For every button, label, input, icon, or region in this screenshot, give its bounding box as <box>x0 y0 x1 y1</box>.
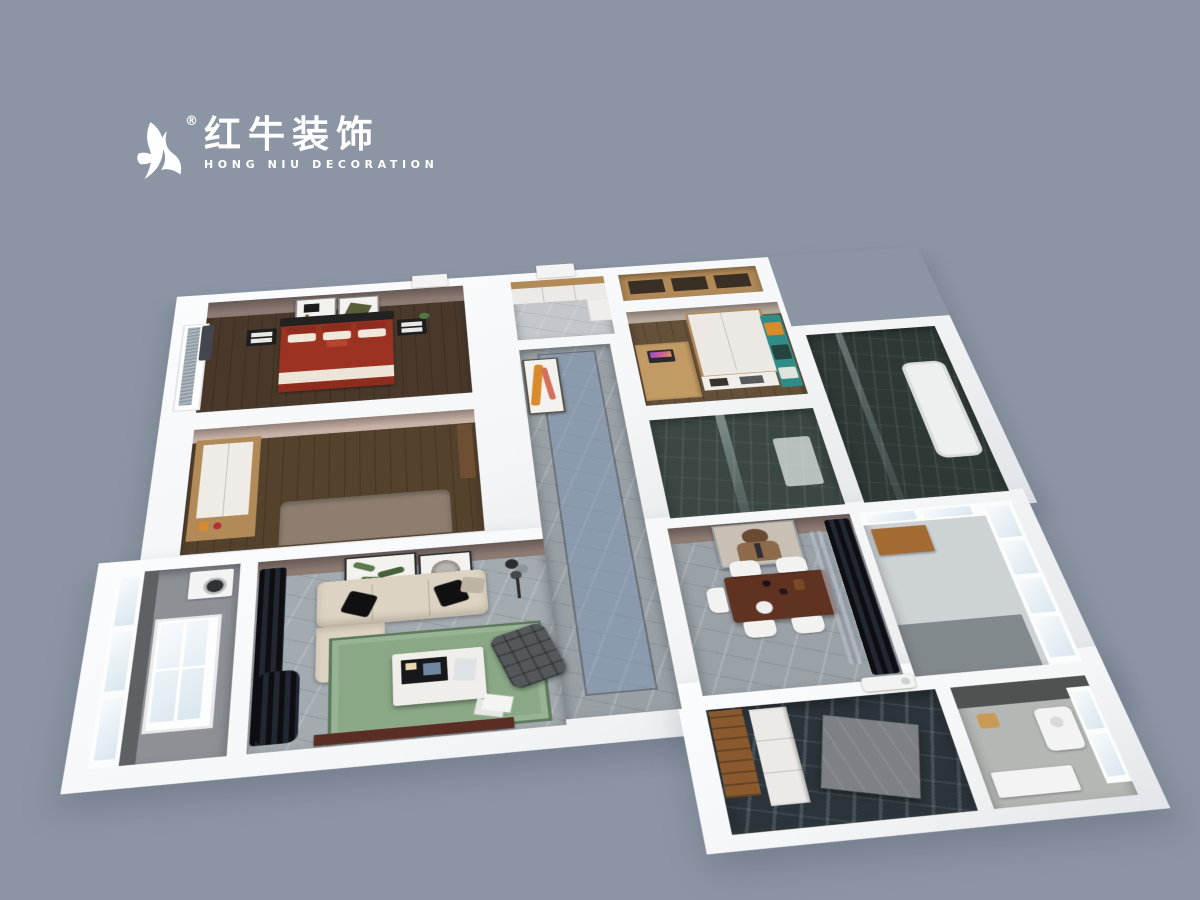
balcony-big-window <box>141 614 222 734</box>
white-pillow <box>288 333 316 343</box>
lumbar-pillow <box>326 339 347 347</box>
dining-chair <box>743 620 779 639</box>
dining-chair <box>791 615 827 634</box>
plant <box>419 312 430 319</box>
floorplan-3d <box>38 242 1200 900</box>
gray-throw <box>460 577 486 594</box>
render-canvas: ® 红牛装饰 HONG NIU DECORATION <box>0 0 1200 900</box>
laptop <box>647 349 676 363</box>
nightstand-right <box>397 318 427 336</box>
amber-bottle <box>199 522 209 531</box>
brand-text: 红牛装饰 HONG NIU DECORATION <box>204 116 438 171</box>
shower-glass-partition <box>715 415 750 513</box>
shelf-slot <box>713 273 751 288</box>
wine-bottle <box>762 580 772 587</box>
washing-machine <box>187 569 234 600</box>
master-bedroom <box>196 286 472 413</box>
brand-logo: ® 红牛装饰 HONG NIU DECORATION <box>128 116 438 188</box>
entry-hall <box>510 276 614 340</box>
wine-bottle <box>778 588 788 595</box>
shower-bathroom <box>649 408 845 518</box>
entry-side-cabinet <box>586 298 612 321</box>
study-bedroom <box>626 302 808 406</box>
plate <box>755 600 775 614</box>
balcony2-wood-cabinet <box>871 525 936 556</box>
white-pillow <box>358 328 386 338</box>
shelf-slot <box>628 279 666 294</box>
vase <box>793 579 806 591</box>
dining-chair <box>774 556 808 573</box>
open-door-entry <box>536 263 576 278</box>
nightstand-left <box>246 328 277 346</box>
table-tray <box>401 656 448 684</box>
brand-name-en: HONG NIU DECORATION <box>204 158 438 171</box>
bull-logo-icon: ® <box>128 116 194 188</box>
washbasin <box>990 765 1081 798</box>
table-book <box>453 658 477 681</box>
red-jar <box>213 522 222 530</box>
shower-tray <box>772 436 824 487</box>
bedroom2-wardrobe <box>185 436 261 542</box>
bedroom2-door <box>457 424 476 479</box>
plan-cutout-top-right <box>768 247 950 326</box>
basket <box>976 713 1001 729</box>
open-door-master <box>412 274 448 288</box>
floor-lamp <box>505 558 532 599</box>
dining-table <box>723 569 838 623</box>
registered-mark: ® <box>185 114 198 129</box>
dining-chair <box>728 560 762 578</box>
shelf-slot <box>671 276 709 291</box>
master-curtain <box>198 325 214 361</box>
master-bed <box>278 319 395 392</box>
brand-name-cn: 红牛装饰 <box>204 116 438 155</box>
living-curtain-bunched <box>254 669 300 746</box>
magazines <box>482 694 514 713</box>
kitchen <box>706 689 978 835</box>
second-bedroom <box>180 409 485 555</box>
living-room <box>246 539 566 754</box>
coffee-table <box>392 647 487 707</box>
kitchen-counter-slab <box>821 715 921 799</box>
